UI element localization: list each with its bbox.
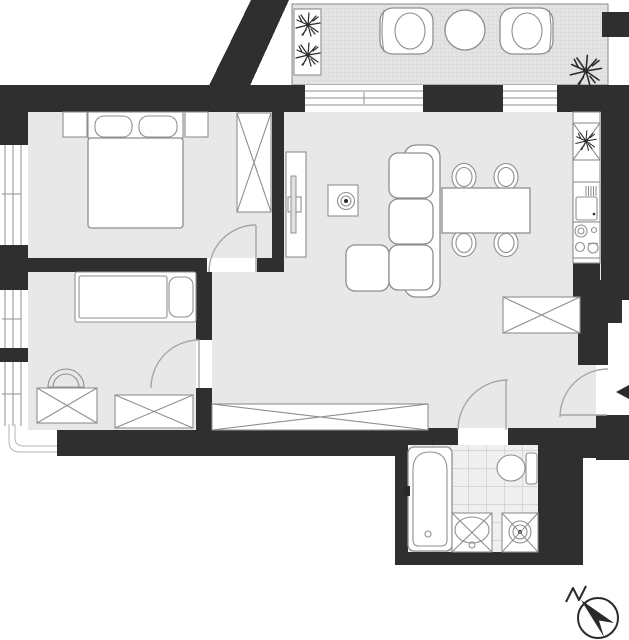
lounge-chair-left	[380, 8, 433, 54]
mattress	[79, 276, 167, 318]
wall-segment	[573, 263, 600, 300]
planter-box	[294, 9, 321, 75]
faucet	[404, 486, 410, 496]
pillow	[169, 277, 193, 317]
sofa-cushion	[389, 153, 433, 198]
toilet-bowl	[497, 455, 525, 481]
tv-icon	[291, 176, 296, 233]
wall-segment	[57, 430, 408, 456]
toilet-tank	[526, 453, 537, 484]
dresser-crossed	[37, 388, 97, 423]
wall-segment	[508, 428, 538, 445]
wall-segment	[0, 258, 207, 272]
wardrobe-crossed	[503, 297, 580, 333]
nightstand	[63, 112, 87, 137]
pillow	[95, 116, 132, 137]
pillow	[139, 116, 177, 137]
fridge-handle	[593, 213, 596, 216]
wall-segment	[601, 85, 629, 300]
dining-chair	[494, 164, 518, 191]
round-table	[445, 10, 485, 50]
floor-plan-canvas	[0, 0, 629, 640]
kitchen-run	[573, 112, 600, 263]
bathtub	[404, 447, 452, 551]
wall-segment	[272, 112, 284, 272]
dresser-crossed	[115, 395, 193, 428]
dining-table	[442, 188, 530, 233]
single-bed	[75, 272, 196, 322]
hallway-closet-crossed	[212, 404, 428, 430]
wall-segment	[196, 388, 212, 430]
refrigerator	[573, 182, 600, 222]
tv-cabinet	[286, 152, 306, 257]
balcony-window-2	[503, 85, 557, 112]
left-window-2	[0, 290, 28, 348]
sofa-cushion	[389, 245, 433, 290]
wardrobe-crossed	[237, 113, 271, 212]
double-bed	[88, 112, 183, 228]
bedroom-furniture	[63, 112, 271, 228]
wall-segment	[578, 323, 608, 365]
compass-needle-icon	[581, 600, 614, 637]
floor-plan	[0, 0, 629, 640]
north-letter-icon	[566, 586, 586, 602]
cooktop	[573, 222, 600, 258]
balcony	[292, 4, 629, 85]
nightstand	[185, 112, 208, 137]
washing-machine-crossed	[502, 513, 538, 552]
balcony-window-1	[305, 85, 423, 112]
plant-icon	[344, 199, 348, 203]
lounge-chair-right	[500, 8, 553, 54]
washbasin-crossed	[452, 513, 492, 552]
left-window-1	[0, 145, 28, 245]
sink-cabinet	[573, 123, 600, 160]
dining-chair	[452, 164, 476, 191]
left-window-3	[0, 362, 28, 426]
wall-segment	[538, 428, 583, 565]
side-table-with-plant	[328, 185, 358, 216]
wall-segment	[602, 12, 629, 37]
sofa-cushion	[389, 199, 433, 244]
wall-segment	[196, 272, 212, 340]
north-arrow	[566, 586, 618, 638]
wall-segment	[395, 443, 408, 565]
mattress	[88, 138, 183, 228]
ottoman	[346, 245, 389, 291]
